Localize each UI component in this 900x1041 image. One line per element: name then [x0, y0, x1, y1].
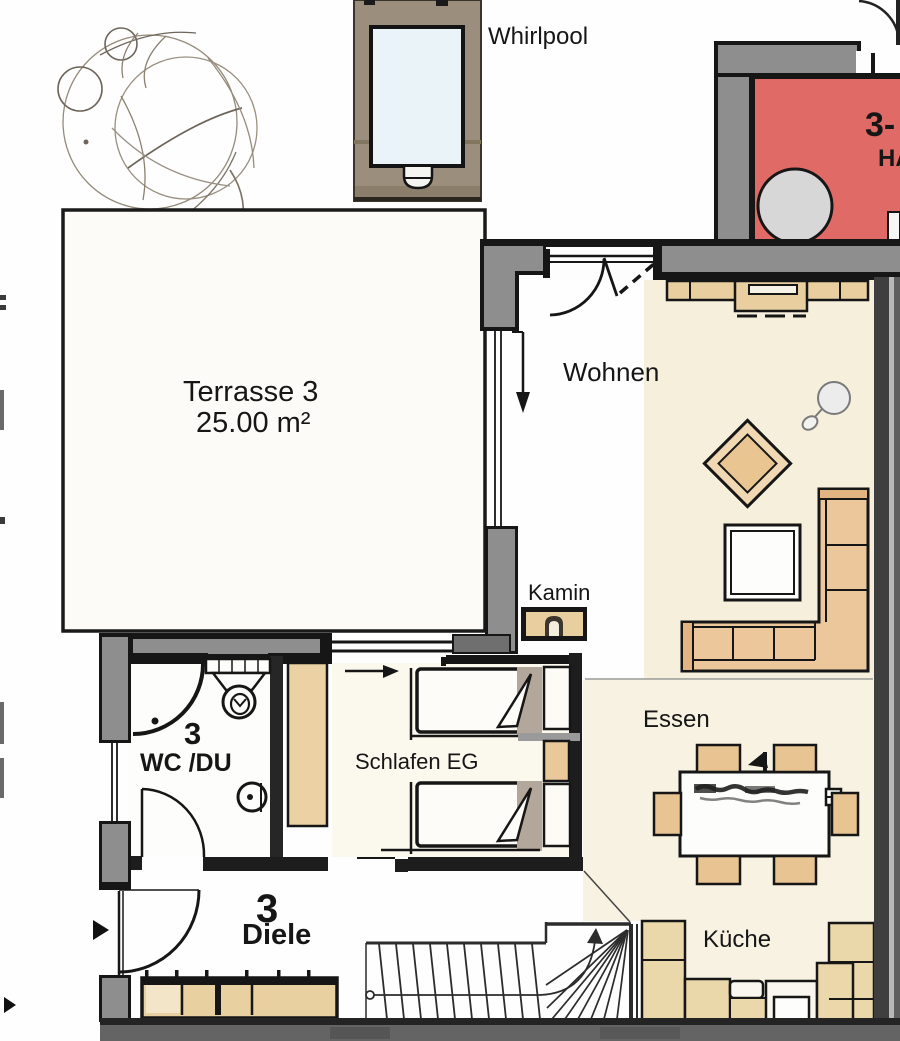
svg-text:Küche: Küche — [703, 926, 771, 953]
svg-text:WC /DU: WC /DU — [140, 749, 232, 777]
svg-text:3: 3 — [184, 716, 201, 751]
svg-text:Terrasse 3: Terrasse 3 — [183, 376, 318, 408]
svg-text:Diele: Diele — [242, 919, 311, 951]
svg-text:Essen: Essen — [643, 706, 710, 733]
svg-text:25.00 m²: 25.00 m² — [196, 407, 311, 439]
svg-text:Kamin: Kamin — [528, 580, 590, 605]
svg-text:Schlafen EG: Schlafen EG — [355, 749, 479, 774]
svg-text:HA: HA — [878, 145, 900, 172]
svg-text:Whirlpool: Whirlpool — [488, 23, 588, 50]
svg-text:3-: 3- — [865, 106, 895, 144]
svg-text:Wohnen: Wohnen — [563, 357, 659, 387]
